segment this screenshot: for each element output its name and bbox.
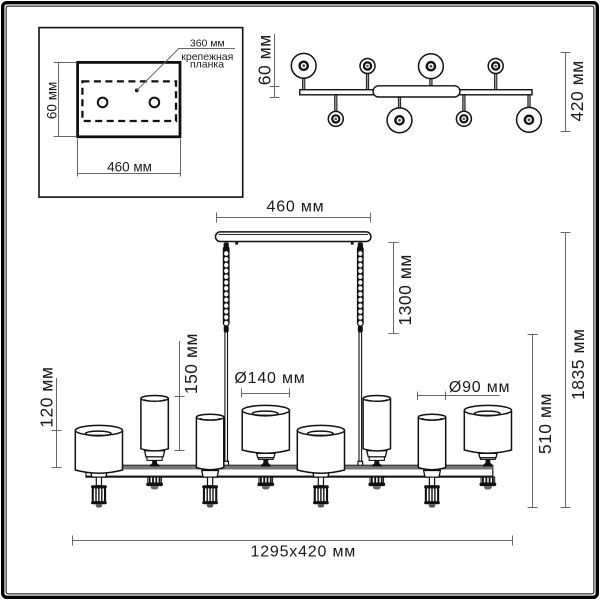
svg-text:420 мм: 420 мм	[567, 60, 587, 121]
svg-text:Ø140 мм: Ø140 мм	[234, 370, 305, 387]
svg-text:150 мм: 150 мм	[181, 333, 201, 394]
svg-text:планка: планка	[190, 58, 224, 70]
svg-text:360 мм: 360 мм	[190, 38, 225, 50]
svg-text:60 мм: 60 мм	[45, 82, 60, 119]
svg-text:60 мм: 60 мм	[255, 34, 275, 85]
svg-text:460 мм: 460 мм	[107, 159, 152, 174]
svg-text:1295x420 мм: 1295x420 мм	[251, 544, 357, 561]
svg-text:Ø90 мм: Ø90 мм	[449, 379, 511, 396]
svg-text:120 мм: 120 мм	[36, 367, 56, 428]
svg-text:1300 мм: 1300 мм	[395, 254, 415, 325]
svg-text:460 мм: 460 мм	[267, 199, 325, 216]
svg-text:510 мм: 510 мм	[535, 393, 555, 454]
svg-text:1835 мм: 1835 мм	[568, 329, 588, 400]
